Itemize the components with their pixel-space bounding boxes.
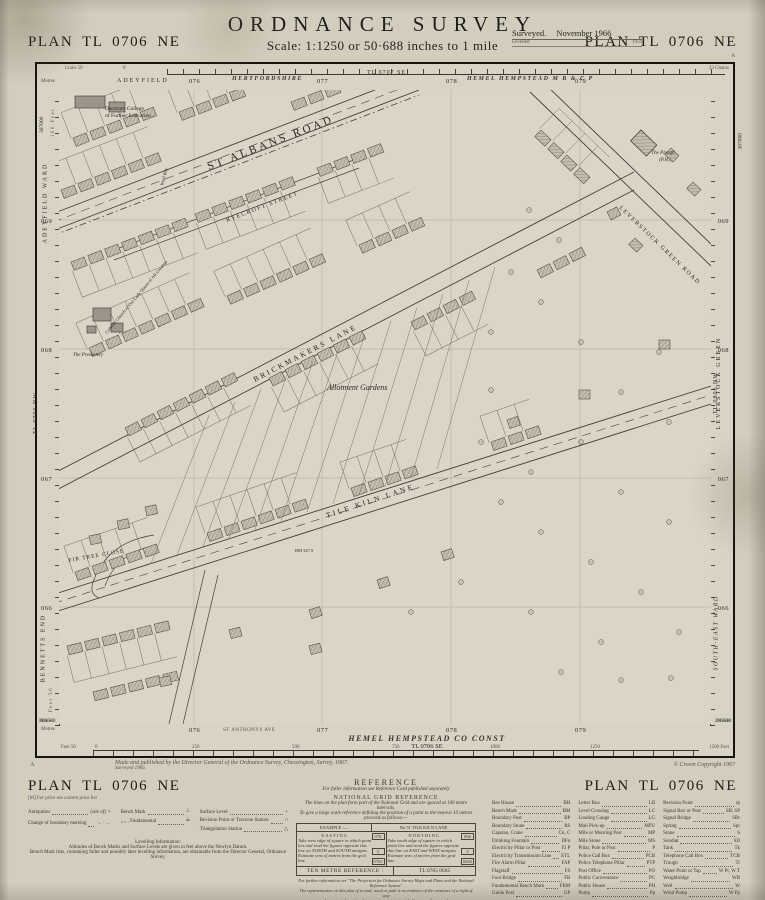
terrace-row — [64, 518, 159, 582]
abbreviation-term: Revision Point — [663, 800, 693, 808]
detached-building — [659, 340, 670, 349]
abbreviation-code: BP — [564, 815, 570, 823]
abbreviation-code: LC — [649, 808, 655, 816]
legend-boundary: Change of boundary mereing → · ← — [28, 821, 111, 827]
northing-text: Take south edge of square in which point… — [388, 838, 462, 853]
abbreviation-term: Boundary Post — [492, 815, 522, 823]
abbreviation-row: Public House PH — [578, 883, 655, 891]
imprint-line2: Surveyed 1966. — [115, 766, 555, 771]
building-block — [87, 326, 96, 333]
abbreviation-row: Mile Stone MS — [578, 838, 655, 846]
map-sheet: Links 50 0 23 Chains Metres ADEYFIELD HE… — [35, 62, 735, 758]
abbreviations-col1: Bee House BH Bench Mark BM Boundary Post — [492, 800, 570, 898]
antiquities-symbol-icon: × — [108, 810, 111, 816]
feet-1000: 1000 — [490, 745, 500, 750]
northing-066-left: 066 — [41, 605, 52, 612]
tree-icon — [667, 520, 672, 525]
detached-building — [117, 519, 130, 530]
abbreviation-term: Sundial — [663, 838, 678, 846]
abbreviation-row: Loading Gauge LG — [578, 815, 655, 823]
abbreviation-term: Well — [663, 883, 672, 891]
levelling-line2: Bench Mark lists, containing fuller and … — [28, 850, 288, 860]
abbreviation-term: Fundamental Bench Mark — [492, 883, 544, 891]
top-zero: 0 — [123, 66, 126, 71]
abbreviation-row: Spring Spr — [663, 823, 740, 831]
northing-val2: 5 — [461, 848, 474, 855]
symbols-legend: Antiquities (site of) × Change of bounda… — [28, 810, 288, 860]
terrace-row — [291, 90, 341, 110]
abbreviation-code: FS — [565, 868, 571, 876]
detached-building — [507, 416, 520, 428]
price-note: [M] For price see current price list — [28, 796, 97, 801]
reference-title: REFERENCE — [296, 778, 476, 787]
abbreviation-row: Foot Bridge FB — [492, 875, 570, 883]
abbreviation-code: Pp — [650, 890, 655, 898]
abbreviation-row: Mile or Mooring Post MP — [578, 830, 655, 838]
surface-level-symbol-icon: + — [285, 810, 288, 816]
abbreviation-term: Post Office — [578, 868, 601, 876]
tree-icon — [657, 350, 662, 355]
abbreviation-term: Pump — [578, 890, 590, 898]
abbreviation-row: Tank Tk — [663, 845, 740, 853]
northing-067-left: 067 — [41, 476, 52, 483]
easting-val2: 5 — [372, 848, 385, 855]
tree-icon — [619, 490, 624, 495]
legend-triangulation: Triangulation Station △ — [200, 827, 288, 833]
legend-revision-point: Revision Point or Traverse Station ○ — [200, 818, 288, 824]
adjoining-sheet-e: TL 0806 NW — [713, 372, 719, 414]
legend-antiquities-suffix: (site of) — [90, 810, 105, 816]
terrace-row — [537, 247, 586, 278]
abbreviation-row: Level Crossing LC — [578, 808, 655, 816]
abbreviation-term: Signal Box or Post — [663, 808, 701, 816]
abbreviation-row: Mail Pick-up MPU — [578, 823, 655, 831]
street-st-albans-road: ST ALBANS ROAD — [206, 113, 336, 172]
top-chains-label: 23 Chains — [709, 66, 729, 71]
constituency-line2: TL 0706 SE — [287, 743, 567, 750]
terrace-row — [69, 218, 198, 297]
abbreviation-code: Cn, C — [559, 830, 571, 838]
building-block — [93, 308, 111, 321]
abbreviation-code: PH — [649, 883, 655, 891]
feet-250: 250 — [192, 745, 200, 750]
feet-500: 500 — [292, 745, 300, 750]
terrace-row — [123, 373, 250, 462]
abbreviation-code: LG — [649, 815, 656, 823]
map-canvas: Dacorum College of Further Education ST … — [59, 90, 711, 724]
survey-record: Surveyed. November 1966 Levelled 1956 — [512, 28, 642, 47]
abbreviation-row: Pillar, Pole or Post P — [578, 845, 655, 853]
abbreviation-term: Public House — [578, 883, 605, 891]
detached-building — [309, 607, 322, 619]
example-value: No 51 TILE KILN LANE — [372, 824, 475, 831]
easting-076-top: 076 — [189, 78, 200, 85]
abbreviation-term: Wind Pump — [663, 890, 687, 898]
tree-icon — [599, 640, 604, 645]
legend-bench-mark: Bench Mark ┴ — [121, 810, 190, 816]
abbreviation-row: Drinking Fountain DFn — [492, 838, 570, 846]
abbreviation-row: Police Call Box PCB — [578, 853, 655, 861]
feet-750: 750 — [392, 745, 400, 750]
ward-south-east-vertical: SOUTH-EAST WARD — [714, 595, 720, 670]
abbreviation-term: Police Call Box — [578, 853, 610, 861]
terrace-row — [214, 228, 326, 305]
abbreviation-row: Well W — [663, 883, 740, 891]
tree-icon — [539, 300, 544, 305]
detached-building — [687, 182, 701, 196]
allotment-strip — [359, 307, 417, 495]
abbreviation-code: WB — [732, 875, 740, 883]
detached-building — [159, 676, 172, 687]
detached-building — [89, 534, 102, 545]
abbreviation-row: Stone S — [663, 830, 740, 838]
abbreviation-code: GP — [564, 890, 570, 898]
tree-icon — [559, 670, 564, 675]
abbreviation-row: Fire Alarm Pillar FAP — [492, 860, 570, 868]
adjoining-sheet-w: TL 0706 NW — [33, 392, 39, 434]
top-metres-label: Metres — [41, 79, 55, 84]
page-title: ORDNANCE SURVEY — [0, 12, 765, 37]
scanned-os-plan: PLAN TL 0706 NE PLAN TL 0706 NE ORDNANCE… — [0, 0, 765, 900]
abbreviation-term: Level Crossing — [578, 808, 608, 816]
abbreviation-term: Weighbridge — [663, 875, 689, 883]
left-metres: Metres — [39, 719, 53, 724]
reference-foot2: The representation on this plan of a roa… — [296, 888, 476, 898]
tree-icon — [479, 440, 484, 445]
reference-section: REFERENCE For fuller information see Ref… — [296, 778, 476, 900]
building-block — [75, 96, 105, 108]
bench-mark-symbol-icon: ┴ — [186, 810, 190, 816]
abbreviation-code: Spr — [733, 823, 740, 831]
imprint: Made and published by the Director Gener… — [115, 760, 555, 771]
feet-end: 1500 Feet — [709, 745, 729, 750]
abbreviation-row: Public Convenience PC — [578, 875, 655, 883]
presbytery-label: The Presbytery — [73, 353, 104, 358]
bottom-ruler — [93, 750, 699, 756]
tree-icon — [619, 390, 624, 395]
abbreviation-code: PTP — [647, 860, 656, 868]
example-label: EXAMPLE :— — [297, 824, 372, 831]
plough-label-2: (P.H.) — [659, 158, 671, 163]
map-margin-top: Links 50 0 23 Chains Metres ADEYFIELD HE… — [37, 64, 733, 90]
tree-icon — [509, 270, 514, 275]
abbreviations-section: Bee House BH Bench Mark BM Boundary Post — [492, 800, 740, 900]
levelled-value: 1956 — [632, 40, 642, 45]
abbreviation-code: BM — [563, 808, 571, 816]
college-label-1: Dacorum College — [105, 106, 145, 112]
abbreviation-code: Tk — [734, 845, 740, 853]
top-ruler — [167, 69, 725, 75]
tree-icon — [499, 500, 504, 505]
abbreviation-code: P — [652, 845, 655, 853]
abbreviation-code: MS — [648, 838, 655, 846]
tree-icon — [527, 208, 532, 213]
detached-building — [229, 627, 242, 639]
detached-building — [377, 577, 390, 589]
abbreviation-row: Signal Box or Post SB, SP — [663, 808, 740, 816]
abbreviation-code: PCB — [646, 853, 655, 861]
abbreviations-col2: Letter Box LB Level Crossing LC Loading … — [578, 800, 655, 898]
map-margin-bottom: Metres 076 ST ANTHONYS AVE 077 078 079 H… — [37, 726, 733, 756]
legend-antiquities: Antiquities (site of) × — [28, 810, 111, 816]
northing-estimate: Estimate tens of metres from the grid li… — [388, 853, 462, 863]
district-bennetts-end: BENNETTS END — [40, 614, 46, 683]
abbreviation-term: Mile or Mooring Post — [578, 830, 621, 838]
northing-total: 0665 — [461, 858, 474, 865]
abbreviation-code: SBr — [732, 815, 740, 823]
abbreviation-term: Spring — [663, 823, 676, 831]
legend-triangulation-label: Triangulation Station — [200, 827, 242, 833]
abbreviation-term: Mile Stone — [578, 838, 600, 846]
terrace-row — [167, 90, 246, 121]
revision-point-symbol-icon: ○ — [285, 818, 288, 824]
abbreviation-code: FAP — [562, 860, 571, 868]
abbreviation-row: Signal Bridge SBr — [663, 815, 740, 823]
abbreviation-row: Trough Tr — [663, 860, 740, 868]
easting-estimate: Estimate tens of metres from the grid li… — [298, 853, 372, 863]
map-margin-right: 069 068 067 066 LEVERSTOCK GREEN TL 0806… — [710, 90, 733, 726]
ward-boundary-note: Ward Bdy — [159, 167, 169, 187]
detached-building — [145, 505, 158, 516]
detached-building — [441, 549, 454, 561]
feet-scale-start: Feet 50 — [61, 745, 76, 750]
detached-building — [309, 643, 322, 655]
abbreviation-code: W Pp — [729, 890, 740, 898]
abbreviation-term: Water Point or Tap — [663, 868, 701, 876]
top-links-label: Links 50 — [65, 66, 83, 71]
abbreviation-row: Sundial SD — [663, 838, 740, 846]
abbreviation-term: Boundary Stone — [492, 823, 524, 831]
legend-boundary-label: Change of boundary mereing — [28, 821, 86, 827]
abbreviation-term: Tank — [663, 845, 673, 853]
northing-067-right: 067 — [718, 476, 729, 483]
constituency-label: HEMEL HEMPSTEAD CO CONST TL 0706 SE — [287, 734, 567, 750]
map-drawing: Dacorum College of Further Education ST … — [59, 90, 711, 724]
tree-icon — [619, 678, 624, 683]
tree-icon — [579, 440, 584, 445]
benchmark-note: BM 347.9 — [295, 548, 314, 553]
easting-val1: 076 — [372, 833, 385, 840]
triangulation-symbol-icon: △ — [284, 827, 288, 833]
easting-078-top: 078 — [446, 78, 457, 85]
abbreviation-row: Fundamental Bench Mark FBM — [492, 883, 570, 891]
abbreviation-code: BS — [564, 823, 570, 831]
abbreviation-code: W Pt, W T — [719, 868, 740, 876]
tree-icon — [409, 610, 414, 615]
imprint-corner-a: A — [30, 762, 34, 768]
abbreviation-row: Electricity Pillar or Post El P — [492, 845, 570, 853]
northing-069-right: 069 — [718, 218, 729, 225]
terrace-row — [65, 621, 177, 683]
easting-076-bottom: 076 — [189, 727, 200, 734]
abbreviations-col3: Revision Point rp Signal Box or Post SB,… — [663, 800, 740, 898]
abbreviation-code: LB — [649, 800, 655, 808]
abbreviation-code: SD — [734, 838, 740, 846]
abbreviation-code: MPU — [644, 823, 655, 831]
abbreviation-code: El P — [562, 845, 570, 853]
easting-078-bottom: 078 — [446, 727, 457, 734]
easting-cell: EASTING Take west edge of square in whic… — [297, 832, 387, 866]
detached-building — [629, 238, 643, 252]
abbreviation-row: Boundary Post BP — [492, 815, 570, 823]
abbreviation-row: Telephone Call Box TCB — [663, 853, 740, 861]
ten-metre-value: TL 0765 0665 — [394, 867, 475, 875]
abbreviation-code: SB, SP — [726, 808, 740, 816]
northing-cell: NORTHING Take south edge of square in wh… — [387, 832, 476, 866]
abbreviation-term: Capstan, Crane — [492, 830, 523, 838]
abbreviation-code: W — [735, 883, 740, 891]
abbreviation-code: rp — [736, 800, 740, 808]
ward-name-adeyfield: ADEYFIELD — [117, 78, 169, 84]
abbreviation-row: Weighbridge WB — [663, 875, 740, 883]
left-feet-scale: 100 Feet — [51, 108, 56, 137]
fundamental-bench-symbol-icon: ╧ — [186, 819, 190, 825]
tree-icon — [529, 470, 534, 475]
crown-copyright: © Crown Copyright 1967 — [673, 762, 735, 768]
northing-068-left: 068 — [41, 347, 52, 354]
example-box: EXAMPLE :— No 51 TILE KILN LANE EASTING … — [296, 823, 476, 876]
tree-icon — [489, 388, 494, 393]
abbreviation-term: Telephone Call Box — [663, 853, 703, 861]
reference-subtitle: For fuller information see Reference Car… — [296, 787, 476, 792]
abbreviation-row: Bench Mark BM — [492, 808, 570, 816]
legend-revision-label: Revision Point or Traverse Station — [200, 818, 269, 824]
abbreviation-row: Capstan, Crane Cn, C — [492, 830, 570, 838]
grid-reference-line1: The lines on the plan form part of the N… — [296, 801, 476, 811]
abbreviation-term: Electricity Pillar or Post — [492, 845, 540, 853]
left-feet-bottom: Feet 50 — [49, 687, 54, 712]
abbreviation-term: Mail Pick-up — [578, 823, 604, 831]
buildings-layer — [59, 90, 701, 701]
tree-icon — [489, 330, 494, 335]
feet-zero: 0 — [95, 745, 98, 750]
abbreviation-row: Wind Pump W Pp — [663, 890, 740, 898]
legend-bench-fundamental: „ „ , Fundamental ╧ — [121, 819, 190, 825]
abbreviation-row: Letter Box LB — [578, 800, 655, 808]
legend-bench2-label: „ „ , Fundamental — [121, 819, 157, 825]
abbreviation-code: ETL — [561, 853, 570, 861]
tree-icon — [459, 580, 464, 585]
abbreviation-code: TCB — [730, 853, 740, 861]
legend-surface-label: Surface Level — [200, 810, 228, 816]
ten-metre-label: TEN METRE REFERENCE : — [297, 867, 394, 875]
surveyed-label: Surveyed. — [512, 28, 546, 38]
abbreviation-code: BH — [563, 800, 570, 808]
allotment-gardens-label: Allotment Gardens — [326, 383, 387, 392]
abbreviation-code: S — [737, 830, 740, 838]
abbreviation-row: Boundary Stone BS — [492, 823, 570, 831]
levelled-label: Levelled — [512, 40, 530, 45]
tree-icon — [677, 630, 682, 635]
abbreviation-term: Pillar, Pole or Post — [578, 845, 615, 853]
abbreviation-row: Revision Point rp — [663, 800, 740, 808]
terrace-row — [315, 144, 394, 204]
easting-079-top: 079 — [575, 78, 586, 85]
legend-surface-level: Surface Level + — [200, 810, 288, 816]
tree-icon — [539, 530, 544, 535]
legend-antiquities-label: Antiquities — [28, 810, 50, 816]
map-margin-left: 100 Feet ADEYFIELD WARD TL 0706 NW BENNE… — [37, 90, 60, 726]
abbreviation-code: PO — [649, 868, 655, 876]
abbreviation-row: Post Office PO — [578, 868, 655, 876]
easting-077-top: 077 — [317, 78, 328, 85]
abbreviation-term: Signal Bridge — [663, 815, 691, 823]
abbreviation-row: Guide Post GP — [492, 890, 570, 898]
abbreviation-row: Police Telephone Pillar PTP — [578, 860, 655, 868]
street-note-st-anthonys: ST ANTHONYS AVE — [223, 728, 275, 733]
abbreviation-row: Pump Pp — [578, 890, 655, 898]
tree-icon — [667, 420, 672, 425]
abbreviation-term: Letter Box — [578, 800, 600, 808]
allotment-strip — [151, 416, 209, 564]
abbreviation-row: Bee House BH — [492, 800, 570, 808]
abbreviation-code: FB — [564, 875, 570, 883]
abbreviation-term: Public Convenience — [578, 875, 618, 883]
corner-mark-a: A — [731, 54, 735, 59]
ward-left-vertical: ADEYFIELD WARD — [42, 163, 48, 244]
terrace-row — [533, 108, 609, 183]
abbreviation-term: Flagstaff — [492, 868, 510, 876]
boundary-symbol-icon: → · ← — [96, 821, 110, 827]
abbreviation-term: Stone — [663, 830, 674, 838]
abbreviation-term: Bee House — [492, 800, 514, 808]
college-label-2: of Further Education — [105, 112, 151, 119]
abbreviation-term: Trough — [663, 860, 678, 868]
grid-reference-line2: To give a large scale reference defining… — [296, 811, 476, 821]
abbreviation-term: Drinking Fountain — [492, 838, 529, 846]
abbreviation-term: Fire Alarm Pillar — [492, 860, 526, 868]
abbreviation-code: MP — [648, 830, 655, 838]
abbreviation-term: Guide Post — [492, 890, 514, 898]
tree-icon — [579, 340, 584, 345]
levelling-info: Levelling Information: Altitudes of Benc… — [28, 840, 288, 860]
abbreviation-term: Electricity Transmission Line — [492, 853, 551, 861]
bottom-metres-label: Metres — [41, 727, 55, 732]
abbreviation-term: Police Telephone Pillar — [578, 860, 625, 868]
abbreviation-code: DFn — [561, 838, 570, 846]
feet-1250: 1250 — [590, 745, 600, 750]
terrace-row — [346, 192, 425, 254]
easting-text: Take west edge of square in which point … — [298, 838, 372, 853]
right-metres: Metres — [717, 719, 731, 724]
abbreviation-code: Tr — [735, 860, 740, 868]
abbreviation-code: PC — [649, 875, 655, 883]
constituency-line1: HEMEL HEMPSTEAD CO CONST — [287, 734, 567, 743]
reference-foot1: For further information see "The Project… — [296, 878, 476, 888]
tree-icon — [557, 238, 562, 243]
tree-icon — [589, 560, 594, 565]
scale-statement: Scale: 1:1250 or 50·688 inches to 1 mile — [0, 38, 765, 54]
northing-val1: 066 — [461, 833, 474, 840]
plan-number-bottom-right: PLAN TL 0706 NE — [585, 778, 737, 795]
legend-bench-label: Bench Mark — [121, 810, 146, 816]
map-labels: Dacorum College of Further Education ST … — [68, 106, 701, 564]
grid-value-ne: 307000 — [737, 133, 743, 150]
abbreviation-term: Bench Mark — [492, 808, 517, 816]
abbreviation-row: Electricity Transmission Line ETL — [492, 853, 570, 861]
northing-069-left: 069 — [41, 218, 52, 225]
surveyed-value: November 1966 — [556, 28, 611, 38]
tree-icon — [639, 590, 644, 595]
abbreviation-row: Water Point or Tap W Pt, W T — [663, 868, 740, 876]
detached-building — [579, 390, 590, 399]
abbreviation-row: Flagstaff FS — [492, 868, 570, 876]
easting-077-bottom: 077 — [317, 727, 328, 734]
plan-number-bottom-left: PLAN TL 0706 NE — [28, 778, 180, 795]
plough-label-1: The Plough — [651, 151, 675, 156]
easting-total: 0765 — [372, 858, 385, 865]
county-name: HERTFORDSHIRE — [232, 76, 303, 82]
